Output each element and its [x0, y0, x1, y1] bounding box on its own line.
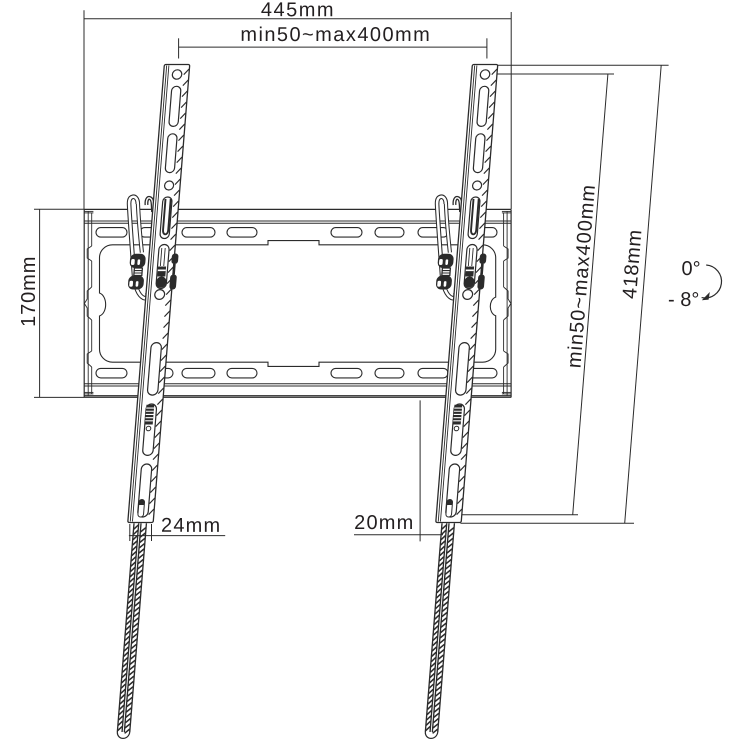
svg-text:445mm: 445mm [261, 0, 335, 21]
svg-text:0°: 0° [681, 258, 700, 280]
svg-text:- 8°: - 8° [668, 289, 699, 311]
svg-text:min50~max400mm: min50~max400mm [563, 183, 600, 369]
svg-text:418mm: 418mm [619, 228, 646, 299]
svg-text:170mm: 170mm [18, 256, 40, 327]
svg-text:20mm: 20mm [354, 512, 414, 534]
svg-text:min50~max400mm: min50~max400mm [240, 24, 431, 46]
svg-text:24mm: 24mm [161, 515, 221, 537]
